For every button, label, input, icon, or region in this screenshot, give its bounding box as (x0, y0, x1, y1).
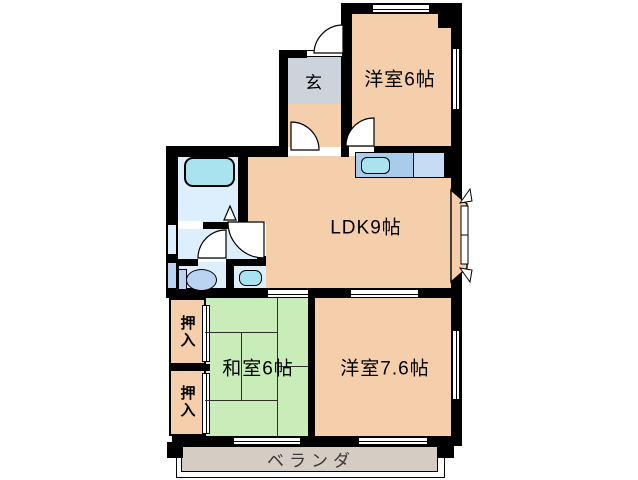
kitchen-counter-wall-block (445, 152, 452, 178)
tatami-line (205, 400, 277, 401)
kitchen-counter-end (413, 152, 445, 178)
sliding-door-ldk-japanese6-icon (267, 289, 309, 298)
sliding-door-ldk-western76-icon (350, 289, 419, 298)
label-genkan: 玄 (305, 69, 323, 94)
window-western6-top-icon (372, 4, 430, 13)
toilet-bowl-icon (186, 269, 217, 291)
label-veranda: ベランダ (267, 447, 355, 472)
sliding-door-western76-veranda-icon (358, 437, 428, 445)
bay-window-glass (461, 206, 468, 264)
closet-upper-fusuma-icon (202, 305, 210, 362)
label-japanese6: 和室6帖 (222, 354, 294, 381)
window-toilet-left-icon (167, 262, 177, 289)
kitchen-sink-icon (361, 157, 390, 174)
wall-western6-left (341, 3, 352, 146)
wall-bath-bottom (203, 222, 248, 229)
label-western6: 洋室6帖 (364, 65, 436, 92)
bath-washroom-opening (178, 221, 203, 229)
wall-upper-mid (166, 146, 288, 157)
wall-genkan-top (279, 50, 307, 58)
sliding-door-japanese6-veranda-icon (233, 437, 301, 445)
hall-ldk-opening (288, 147, 341, 156)
entrance-door-arc-icon (314, 25, 343, 53)
bathtub-icon (184, 157, 235, 187)
wall-closet-divider (169, 364, 210, 371)
label-western76: 洋室7.6帖 (340, 354, 429, 381)
closet-lower-fusuma-icon (202, 373, 210, 434)
room-hallway-floor (284, 104, 345, 150)
wall-bath-right (238, 146, 248, 226)
window-western76-right-icon (452, 330, 460, 400)
wall-stub-hall-western6 (341, 146, 349, 157)
window-western6-right-icon (452, 48, 460, 110)
wall-japanese-western-divider (308, 298, 315, 436)
wall-western6-corner-notch (438, 3, 461, 28)
floorplan: 玄 洋室6帖 LDK9帖 和室6帖 洋室7.6帖 押入 押入 ベランダ (0, 0, 638, 480)
label-closet-upper: 押入 (177, 315, 198, 349)
washbasin-icon (239, 270, 262, 286)
window-bath-left-icon (167, 224, 177, 255)
entrance-threshold (306, 50, 343, 57)
wall-genkan-left (279, 50, 288, 157)
label-closet-lower: 押入 (177, 385, 198, 419)
label-ldk: LDK9帖 (330, 213, 402, 240)
ldk-washroom-opening (257, 222, 266, 256)
